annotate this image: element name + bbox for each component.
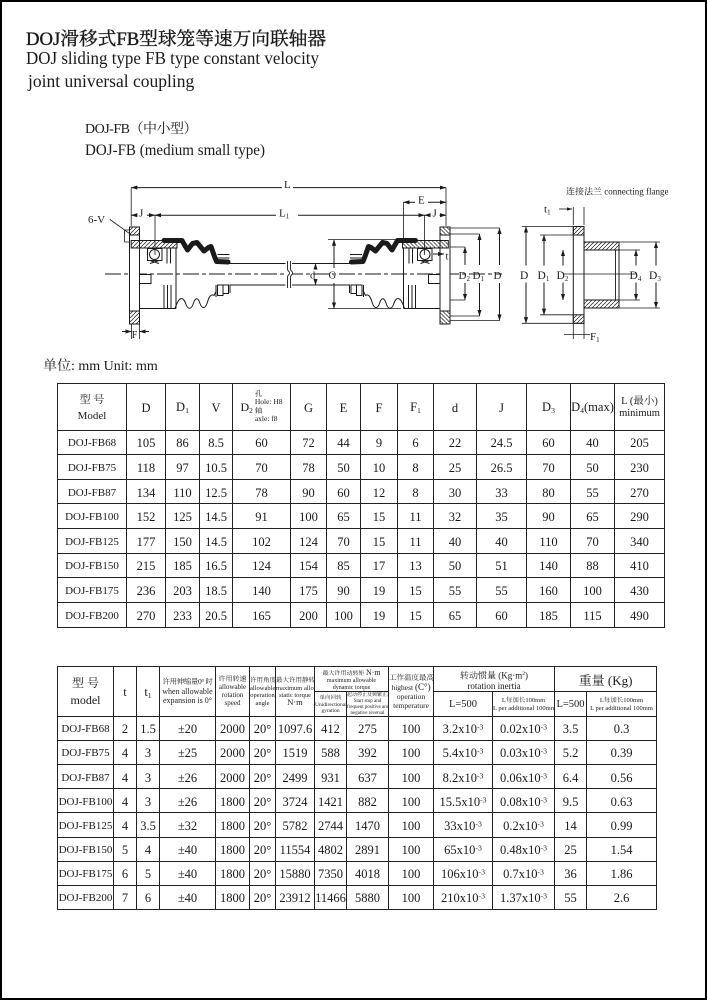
svg-text:D: D [494,267,502,283]
svg-text:D2: D2 [557,267,569,284]
svg-text:L1: L1 [279,205,290,222]
svg-text:G: G [329,268,337,283]
svg-text:F1: F1 [590,328,600,345]
svg-text:L: L [284,176,291,192]
svg-text:6-V: 6-V [88,211,105,227]
svg-text:连接法兰 connecting flange: 连接法兰 connecting flange [566,185,668,198]
svg-text:D1: D1 [538,267,550,284]
svg-text:F: F [132,326,138,341]
svg-text:D3: D3 [649,267,661,284]
svg-text:t1: t1 [544,201,551,218]
svg-text:D4: D4 [630,267,642,284]
svg-text:D2: D2 [459,267,471,284]
svg-text:D1: D1 [473,267,485,284]
svg-text:D: D [520,267,528,283]
svg-text:t: t [446,249,449,264]
svg-text:J: J [433,205,438,221]
svg-text:J: J [139,205,144,221]
svg-text:d: d [310,268,316,283]
svg-text:E: E [418,192,425,208]
